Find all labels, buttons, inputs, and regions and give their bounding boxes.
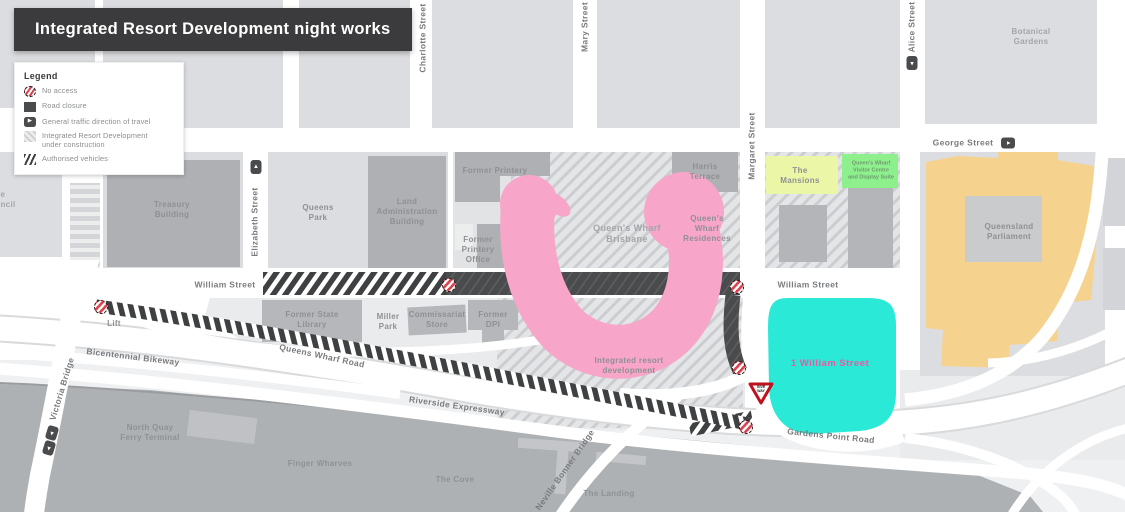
page-title: Integrated Resort Development night work…	[14, 8, 412, 51]
legend-item-under-construction: Integrated Resort Development under cons…	[24, 131, 174, 150]
give-way-text: GIVE WAY	[748, 386, 774, 394]
legend-item-traffic-direction: ▶ General traffic direction of travel	[24, 117, 174, 127]
traffic-direction-icon-elizabeth: ▲	[251, 160, 262, 174]
road-closure-icon	[24, 102, 36, 112]
legend-label: Road closure	[42, 101, 87, 110]
legend-item-road-closure: Road closure	[24, 101, 174, 112]
traffic-direction-icon: ▶	[24, 117, 36, 127]
legend-label: General traffic direction of travel	[42, 117, 150, 126]
legend-item-authorised-vehicles: Authorised vehicles	[24, 154, 174, 165]
traffic-direction-icon-george: ▲	[1001, 138, 1015, 149]
legend-heading: Legend	[24, 71, 174, 81]
traffic-direction-icon-alice: ▲	[907, 56, 918, 70]
authorised-vehicles-icon	[24, 154, 36, 165]
give-way-sign: GIVE WAY	[748, 382, 774, 406]
legend-item-no-access: No access	[24, 86, 174, 97]
legend-label: Authorised vehicles	[42, 154, 108, 163]
legend: Legend No access Road closure ▶ General …	[14, 62, 184, 175]
legend-label: Integrated Resort Development under cons…	[42, 131, 148, 150]
map-canvas: Integrated Resort Development night work…	[0, 0, 1125, 512]
no-access-icon	[24, 86, 36, 97]
legend-label: No access	[42, 86, 77, 95]
under-construction-icon	[24, 131, 36, 142]
